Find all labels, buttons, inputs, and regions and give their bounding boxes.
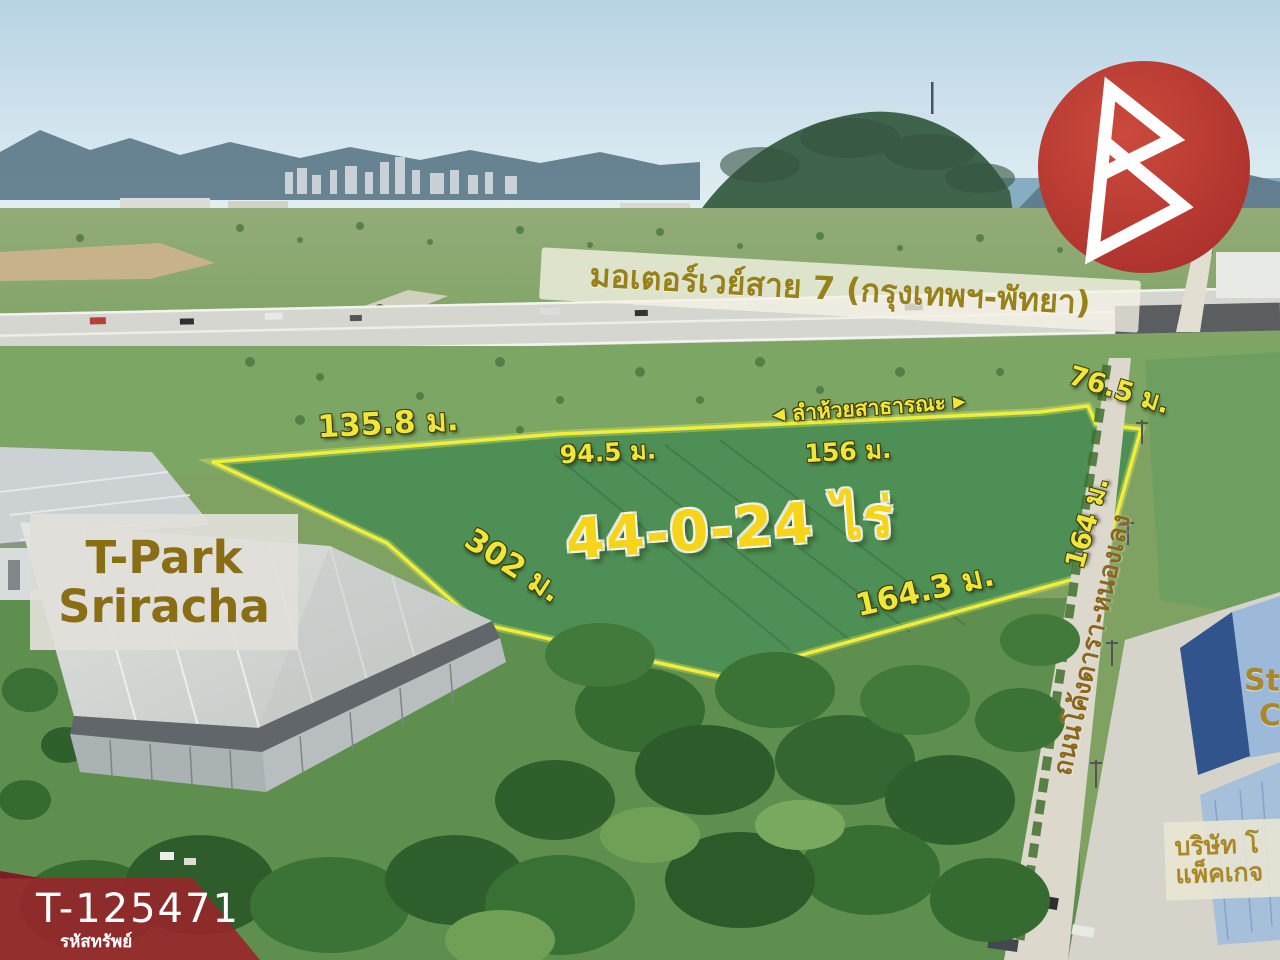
tpark-label-box: T-Park Sriracha: [30, 514, 298, 650]
right-building-label-1: St: [1243, 665, 1280, 698]
right-building-label-2: C: [1258, 700, 1280, 732]
company-label-box: บริษัท โ แพ็คเกจ: [1164, 817, 1280, 900]
measurement-top-mid: 94.5 ม.: [559, 437, 657, 468]
antenna: [931, 82, 934, 114]
right-arrow-icon: ▶: [952, 391, 966, 411]
tpark-line1: T-Park: [85, 534, 242, 581]
brand-logo: [1038, 61, 1250, 273]
measurement-top-left: 135.8 ม.: [317, 404, 460, 444]
company-line1: บริษัท โ: [1174, 831, 1259, 860]
left-arrow-icon: ◀: [772, 404, 786, 424]
tpark-line2: Sriracha: [58, 583, 270, 630]
listing-photo-stage: มอเตอร์เวย์สาย 7 (กรุงเทพฯ-พัทยา) 135.8 …: [0, 0, 1280, 960]
measurement-top-right: 156 ม.: [804, 437, 892, 468]
company-line2: แพ็คเกจ: [1175, 859, 1264, 888]
